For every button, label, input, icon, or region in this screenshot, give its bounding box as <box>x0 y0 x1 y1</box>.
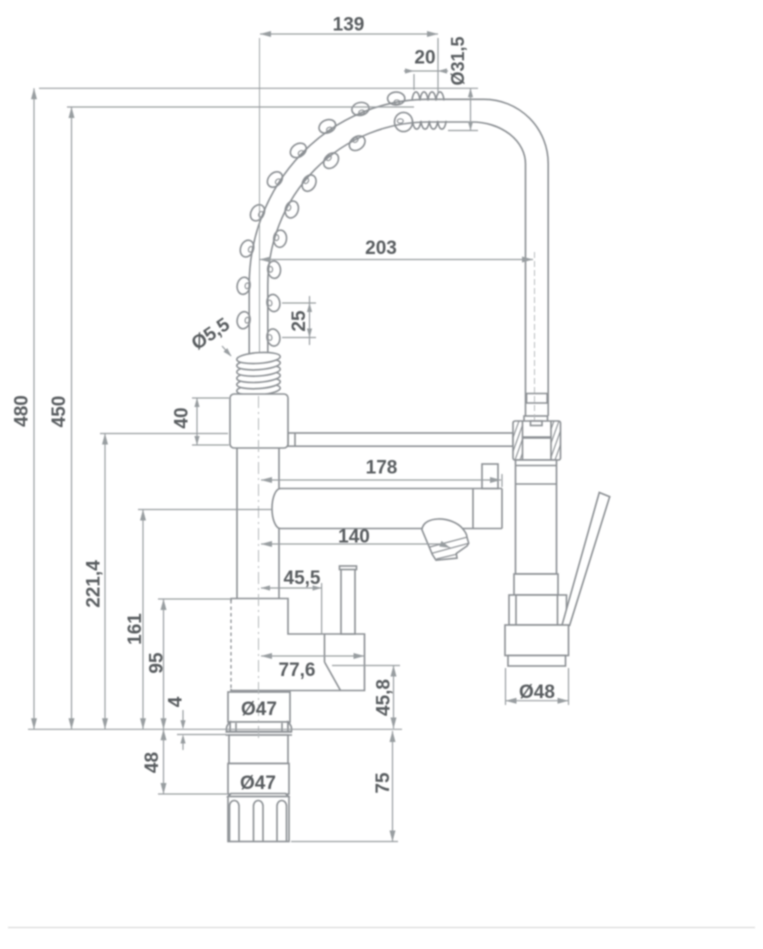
svg-text:95: 95 <box>146 652 167 674</box>
svg-text:4: 4 <box>166 696 187 707</box>
svg-text:140: 140 <box>338 527 370 548</box>
svg-text:40: 40 <box>172 407 193 428</box>
svg-text:161: 161 <box>125 613 146 645</box>
svg-text:Ø31,5: Ø31,5 <box>448 36 468 85</box>
svg-text:77,6: 77,6 <box>279 660 316 681</box>
svg-text:480: 480 <box>12 395 33 427</box>
svg-text:450: 450 <box>49 396 70 428</box>
svg-text:203: 203 <box>365 238 397 259</box>
svg-text:75: 75 <box>373 772 394 794</box>
svg-text:Ø47: Ø47 <box>240 773 276 794</box>
svg-text:Ø48: Ø48 <box>519 682 555 703</box>
svg-text:221,4: 221,4 <box>84 560 105 608</box>
svg-text:45,5: 45,5 <box>284 568 321 589</box>
svg-text:20: 20 <box>414 48 435 69</box>
svg-text:48: 48 <box>142 752 163 773</box>
svg-text:Ø47: Ø47 <box>241 699 277 720</box>
svg-text:139: 139 <box>333 15 365 36</box>
svg-text:178: 178 <box>366 458 398 479</box>
svg-text:25: 25 <box>289 310 310 332</box>
svg-text:45,8: 45,8 <box>374 679 395 716</box>
